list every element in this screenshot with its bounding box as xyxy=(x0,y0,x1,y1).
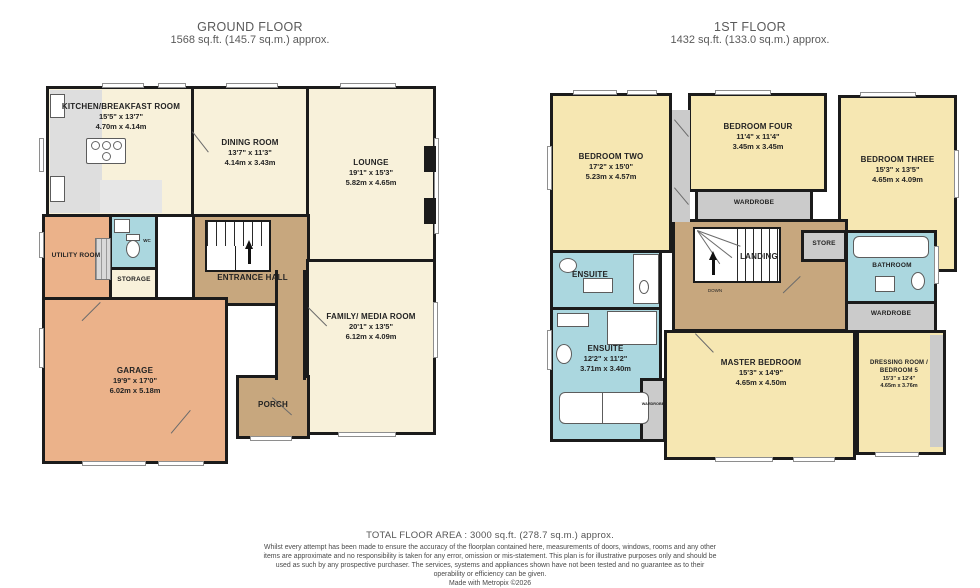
label-master-bedroom: MASTER BEDROOM 15'3" x 14'9" 4.65m x 4.5… xyxy=(683,358,839,388)
window xyxy=(39,138,44,172)
window xyxy=(875,452,919,457)
dressing-wardrobe-strip xyxy=(930,335,943,447)
label-porch: PORCH xyxy=(238,400,308,410)
label-ensuite-two: ENSUITE 12'2" x 11'2" 3.71m x 3.40m xyxy=(553,344,658,374)
window xyxy=(102,83,144,88)
ground-floor-area: 1568 sq.ft. (145.7 sq.m.) approx. xyxy=(90,34,410,46)
window xyxy=(715,457,773,462)
label-utility: UTILITY ROOM xyxy=(40,252,112,260)
room-family-media xyxy=(306,259,436,435)
label-wc: WC xyxy=(138,238,156,244)
window xyxy=(793,457,835,462)
label-dressing-bedroom-five: DRESSING ROOM / BEDROOM 5 15'3" x 12'4" … xyxy=(859,360,939,390)
kitchen-unit-icon xyxy=(50,176,65,202)
toilet-icon xyxy=(639,280,649,294)
window xyxy=(860,92,916,97)
room-master-bedroom xyxy=(664,330,856,460)
label-wardrobe-bedroom-four: WARDROBE xyxy=(697,199,811,207)
shower-icon xyxy=(607,311,657,345)
label-landing-down: DOWN xyxy=(695,288,735,294)
window xyxy=(39,328,44,368)
window xyxy=(250,436,292,441)
label-storage: STORAGE xyxy=(106,276,162,284)
label-store: STORE xyxy=(803,240,845,248)
label-entrance-hall: ENTRANCE HALL xyxy=(195,273,310,283)
label-wardrobe-master: WARDROBE xyxy=(641,402,665,407)
first-floor-plan: BEDROOM TWO 17'2" x 15'0" 5.23m x 4.57m … xyxy=(545,80,975,472)
basin-icon xyxy=(875,276,895,292)
label-dining: DINING ROOM 13'7" x 11'3" 4.14m x 3.43m xyxy=(193,138,307,168)
window xyxy=(627,90,657,95)
label-garage: GARAGE 19'9" x 17'0" 6.02m x 5.18m xyxy=(75,366,195,396)
hall-connector xyxy=(275,270,306,380)
label-kitchen: KITCHEN/BREAKFAST ROOM 15'5" x 13'7" 4.7… xyxy=(56,102,186,132)
window xyxy=(158,461,204,466)
first-floor-header: 1ST FLOOR 1432 sq.ft. (133.0 sq.m.) appr… xyxy=(590,20,910,46)
window xyxy=(573,90,617,95)
footer: TOTAL FLOOR AREA : 3000 sq.ft. (278.7 sq… xyxy=(0,530,980,587)
window xyxy=(715,90,771,95)
label-lounge: LOUNGE 19'1" x 15'3" 5.82m x 4.65m xyxy=(311,158,431,188)
kitchen-floor-area-2 xyxy=(100,180,162,213)
shower-icon xyxy=(633,254,659,304)
window xyxy=(547,330,552,370)
ground-floor-plan: KITCHEN/BREAKFAST ROOM 15'5" x 13'7" 4.7… xyxy=(40,80,480,472)
toilet-icon xyxy=(911,272,925,290)
window xyxy=(338,432,396,437)
window xyxy=(158,83,186,88)
window xyxy=(82,461,146,466)
total-floor-area: TOTAL FLOOR AREA : 3000 sq.ft. (278.7 sq… xyxy=(0,530,980,541)
stairs-up-icon xyxy=(205,220,271,272)
window xyxy=(340,83,396,88)
credit-text: Made with Metropix ©2026 xyxy=(0,580,980,587)
label-bathroom: BATHROOM xyxy=(853,262,931,270)
double-bath-icon xyxy=(559,392,649,424)
wc-basin-icon xyxy=(114,219,130,233)
window xyxy=(226,83,278,88)
label-wardrobe-bathroom: WARDROBE xyxy=(849,310,933,318)
hob-icon xyxy=(86,138,126,164)
label-landing: LANDING xyxy=(729,252,789,262)
fireplace-icon xyxy=(424,198,436,224)
bath-icon xyxy=(853,236,929,258)
ground-floor-header: GROUND FLOOR 1568 sq.ft. (145.7 sq.m.) a… xyxy=(90,20,410,46)
first-floor-area: 1432 sq.ft. (133.0 sq.m.) approx. xyxy=(590,34,910,46)
label-family-media: FAMILY/ MEDIA ROOM 20'1" x 13'5" 6.12m x… xyxy=(310,312,432,342)
label-bedroom-two: BEDROOM TWO 17'2" x 15'0" 5.23m x 4.57m xyxy=(551,152,671,182)
label-bedroom-four: BEDROOM FOUR 11'4" x 11'4" 3.45m x 3.45m xyxy=(693,122,823,152)
basin-icon xyxy=(557,313,589,327)
label-ensuite-one: ENSUITE xyxy=(555,270,625,280)
ground-floor-title: GROUND FLOOR xyxy=(90,20,410,34)
window xyxy=(433,302,438,358)
first-floor-title: 1ST FLOOR xyxy=(590,20,910,34)
label-bedroom-three: BEDROOM THREE 15'3" x 13'5" 4.65m x 4.09… xyxy=(840,155,955,185)
window xyxy=(934,246,939,284)
disclaimer-text: Whilst every attempt has been made to en… xyxy=(260,543,720,579)
